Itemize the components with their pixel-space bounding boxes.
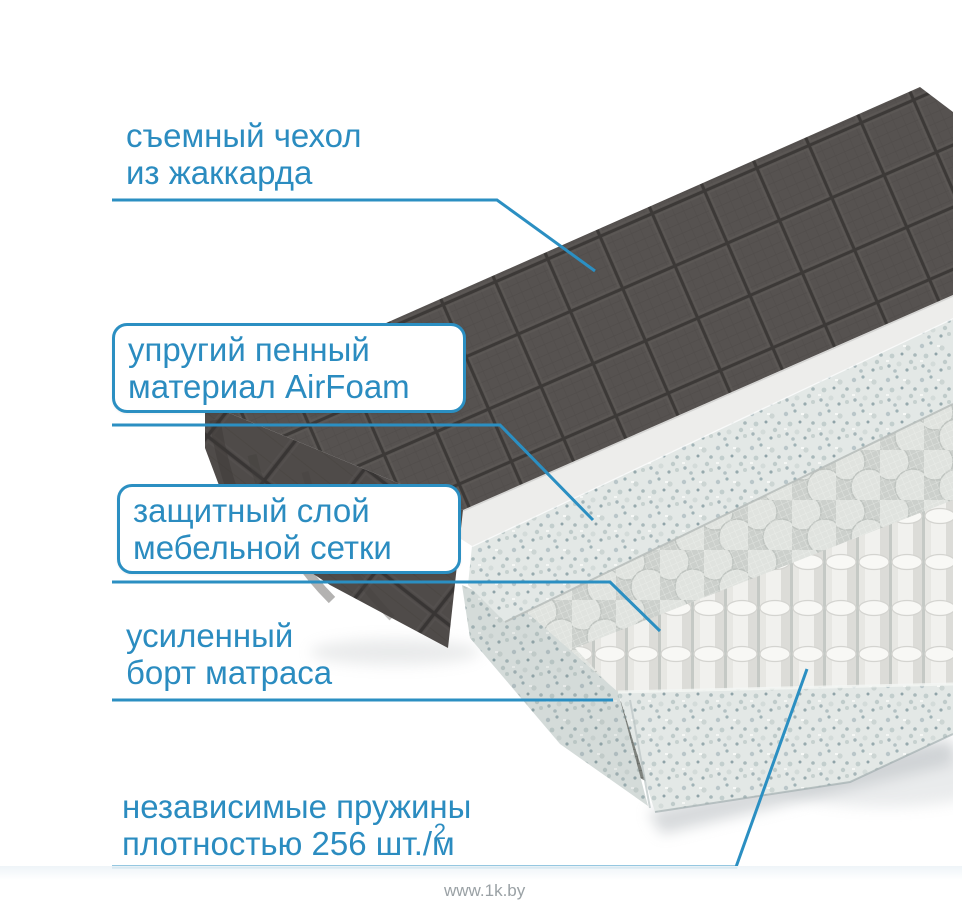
label-cover-line1: съемный чехол: [126, 117, 362, 154]
label-springs-line2-text: плотностью 256 шт./м: [122, 825, 455, 862]
bottom-tint: [0, 866, 962, 880]
watermark: www.1k.by: [444, 881, 525, 901]
label-edge-line1: усиленный: [126, 617, 332, 654]
label-edge-line2: борт матраса: [126, 654, 332, 691]
label-springs-line1: независимые пружины: [122, 788, 471, 825]
label-foam: упругий пенный материал AirFoam: [112, 323, 466, 413]
label-springs-line2: плотностью 256 шт./м2: [122, 825, 471, 866]
label-springs-superscript: 2: [434, 819, 446, 844]
callout-line-cover: [112, 200, 595, 271]
label-mesh: защитный слой мебельной сетки: [117, 484, 461, 574]
label-springs: независимые пружины плотностью 256 шт./м…: [122, 788, 471, 866]
label-mesh-line2: мебельной сетки: [133, 529, 448, 566]
label-cover-line2: из жаккарда: [126, 154, 362, 191]
label-cover: съемный чехол из жаккарда: [126, 117, 362, 191]
mattress-diagram: съемный чехол из жаккарда упругий пенный…: [0, 0, 962, 920]
label-mesh-line1: защитный слой: [133, 492, 448, 529]
label-foam-line1: упругий пенный: [128, 331, 453, 368]
label-edge: усиленный борт матраса: [126, 617, 332, 691]
label-foam-line2: материал AirFoam: [128, 368, 453, 405]
